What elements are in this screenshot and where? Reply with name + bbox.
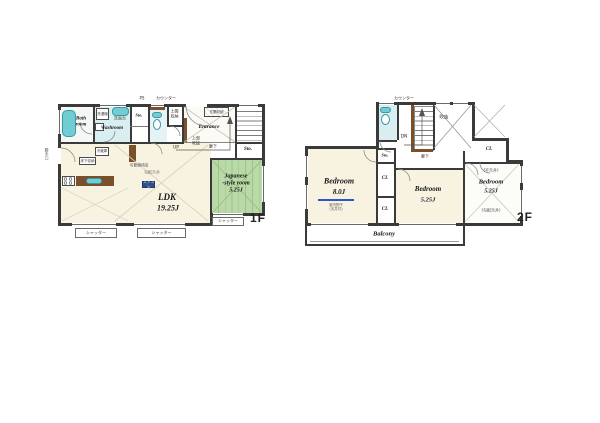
toilet-counter-1f	[150, 107, 165, 110]
entrance-storage-label: 玄関収納	[210, 110, 224, 115]
shutter-box: シャッター	[137, 228, 186, 238]
label-ldk: LDK	[158, 192, 176, 202]
toilet-tank-1f	[152, 112, 162, 118]
label-washroom: Washroom	[101, 126, 123, 132]
label-bedroom1: Bedroom	[324, 176, 354, 185]
label-shelf: 可動棚4段	[130, 164, 149, 169]
wall-segment	[394, 148, 396, 223]
wall-segment	[397, 104, 399, 140]
label-ldk-size: 19.25J	[157, 203, 179, 212]
label-flat-ceiling: (平天井)	[483, 169, 498, 174]
label-bedroom2: Bedroom	[415, 185, 441, 193]
floor-label-2f: 2F	[517, 211, 533, 225]
label-ps: PS	[140, 97, 145, 102]
label-cl-a: CL	[382, 176, 388, 182]
wall-segment	[376, 140, 397, 142]
wall-segment	[93, 106, 95, 143]
back-door-opening	[58, 148, 61, 164]
wall-segment	[463, 162, 521, 164]
pantry-shelf	[129, 145, 136, 162]
room-bedroom-1	[308, 149, 376, 223]
wall-segment	[167, 125, 183, 127]
shutter-box: シャッター	[212, 217, 244, 226]
toilet-bowl-2f	[381, 114, 390, 125]
wall-segment	[210, 158, 262, 160]
label-hallway-2f: 廊下	[421, 155, 429, 160]
label-hallway-1f: 廊下	[209, 145, 217, 150]
window-line	[263, 166, 264, 202]
label-upper-void: 上部 吹抜	[192, 136, 200, 145]
wall-segment	[376, 149, 378, 223]
washroom-sink	[112, 107, 129, 116]
fridge-box: 冷蔵庫	[95, 147, 109, 156]
wall-segment	[376, 148, 394, 150]
aircon-label: エアコン	[143, 180, 154, 190]
wall-segment	[376, 162, 394, 164]
window-line	[239, 105, 258, 106]
wall-segment	[130, 126, 148, 127]
wall-segment	[130, 106, 132, 143]
label-vanity: 洗面台	[114, 117, 126, 122]
aircon-box: エアコン	[142, 181, 155, 188]
label-sto-2f: Sto.	[381, 152, 388, 157]
entrance-storage-box: 玄関収納	[204, 107, 229, 117]
underfloor-storage-box: 床下収納	[79, 157, 96, 165]
wall-segment	[60, 142, 184, 144]
shutter-box: シャッター	[75, 228, 117, 238]
wall-segment	[433, 104, 435, 150]
window-line	[59, 110, 60, 134]
label-bedroom1-size: 8.0J	[333, 188, 345, 196]
label-void-2f: 吹抜	[440, 115, 449, 120]
toilet-bowl-1f	[153, 119, 161, 130]
label-cl-c: CL	[486, 147, 492, 153]
label-doma-storage: 土間 収納	[171, 109, 179, 118]
wall-segment	[210, 158, 212, 214]
label-bedroom3-size: 5.25J	[484, 189, 498, 196]
window-line	[72, 224, 116, 225]
window-line	[306, 156, 307, 177]
stairs-1f	[236, 106, 264, 144]
label-counter-1f: カウンター	[156, 97, 176, 102]
balcony-rail	[305, 226, 307, 246]
washer-label: 洗濯機	[97, 112, 108, 117]
window-line	[151, 105, 164, 106]
window-line	[436, 103, 450, 104]
wall-segment	[148, 106, 150, 143]
window-line	[100, 105, 126, 106]
window-line	[521, 166, 522, 183]
label-dn: DN	[401, 134, 408, 139]
wall-segment	[472, 138, 509, 141]
label-sloped-ceiling: (勾配天井)	[481, 209, 500, 214]
stair-wall-2f	[411, 149, 433, 152]
label-up: UP	[173, 145, 179, 150]
balcony-rail	[463, 226, 465, 246]
wall-segment	[182, 106, 184, 143]
wall-segment	[167, 106, 169, 126]
wall-segment	[376, 196, 394, 198]
label-counter-2f: カウンター	[394, 97, 414, 102]
fridge-label: 冷蔵庫	[97, 149, 108, 154]
window-line	[399, 224, 456, 225]
label-cl-b: CL	[382, 207, 388, 213]
label-bathroom: Bath room	[76, 116, 87, 128]
window-line	[379, 103, 394, 104]
label-backdoor: 勝手口	[44, 148, 49, 160]
label-sto-east: Sto.	[244, 147, 252, 153]
stove	[62, 176, 75, 186]
floor-plan-canvas: 洗濯機 玄関収納 冷蔵庫 床下収納 エアコン	[0, 0, 600, 423]
window-line	[306, 185, 307, 209]
front-door-opening	[186, 104, 207, 107]
label-entrance: Entrance	[198, 124, 219, 130]
laundry-pole	[318, 199, 354, 201]
underfloor-label: 床下収納	[81, 159, 95, 164]
washing-machine: 洗濯機	[96, 108, 109, 120]
window-line	[134, 224, 185, 225]
window-line	[213, 214, 243, 215]
wall-segment	[235, 142, 262, 144]
kitchen-sink	[86, 178, 102, 184]
label-balcony: Balcony	[373, 230, 395, 237]
label-bedroom2-size: 5.25J	[421, 196, 436, 203]
wall-segment	[235, 106, 237, 159]
label-japanese-room: Japanese -style room 5.25J	[222, 174, 250, 195]
wall-segment	[305, 146, 379, 149]
label-sto-hall: Sto.	[135, 112, 142, 117]
bathtub	[62, 110, 76, 137]
balcony-rail	[305, 244, 465, 246]
stair-wall-2f	[411, 104, 414, 151]
wall-segment	[394, 168, 463, 170]
window-line	[311, 224, 368, 225]
entrance-step-rail	[184, 118, 187, 142]
toilet-tank-2f	[380, 107, 391, 113]
stairs-2f	[414, 106, 434, 151]
wall-segment	[472, 102, 475, 141]
window-line	[453, 103, 468, 104]
label-laundry: 室内物干 (天井付)	[329, 203, 343, 211]
label-ceiling-1f: 勾配天井	[144, 171, 160, 176]
wall-segment	[506, 138, 509, 163]
label-bedroom3: Bedroom	[479, 178, 504, 185]
balcony-inner-line	[310, 241, 459, 242]
floor-label-1f: 1F	[250, 212, 266, 226]
